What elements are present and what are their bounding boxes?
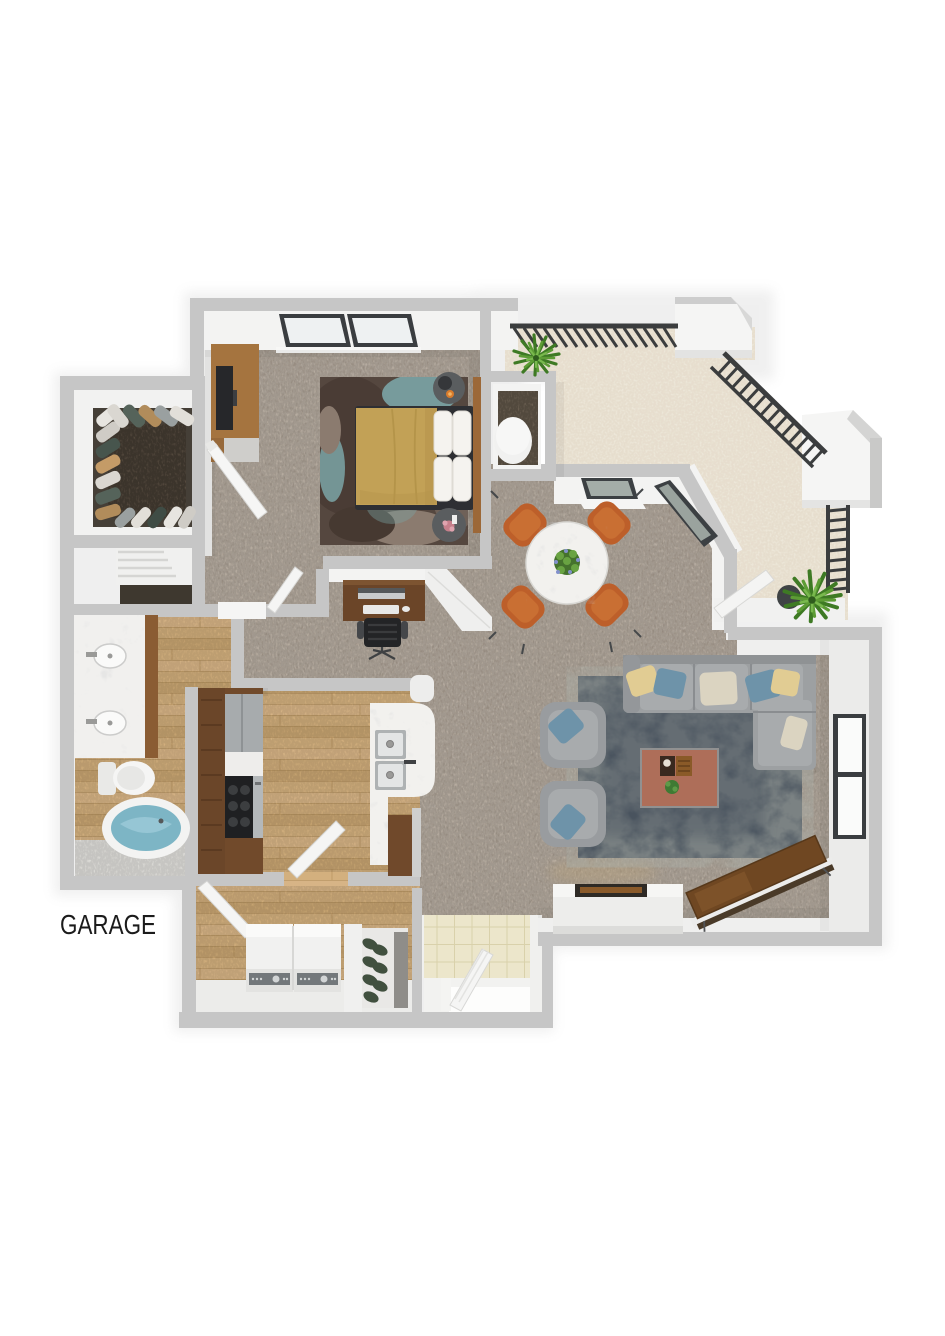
svg-text:GARAGE: GARAGE [60,909,156,940]
